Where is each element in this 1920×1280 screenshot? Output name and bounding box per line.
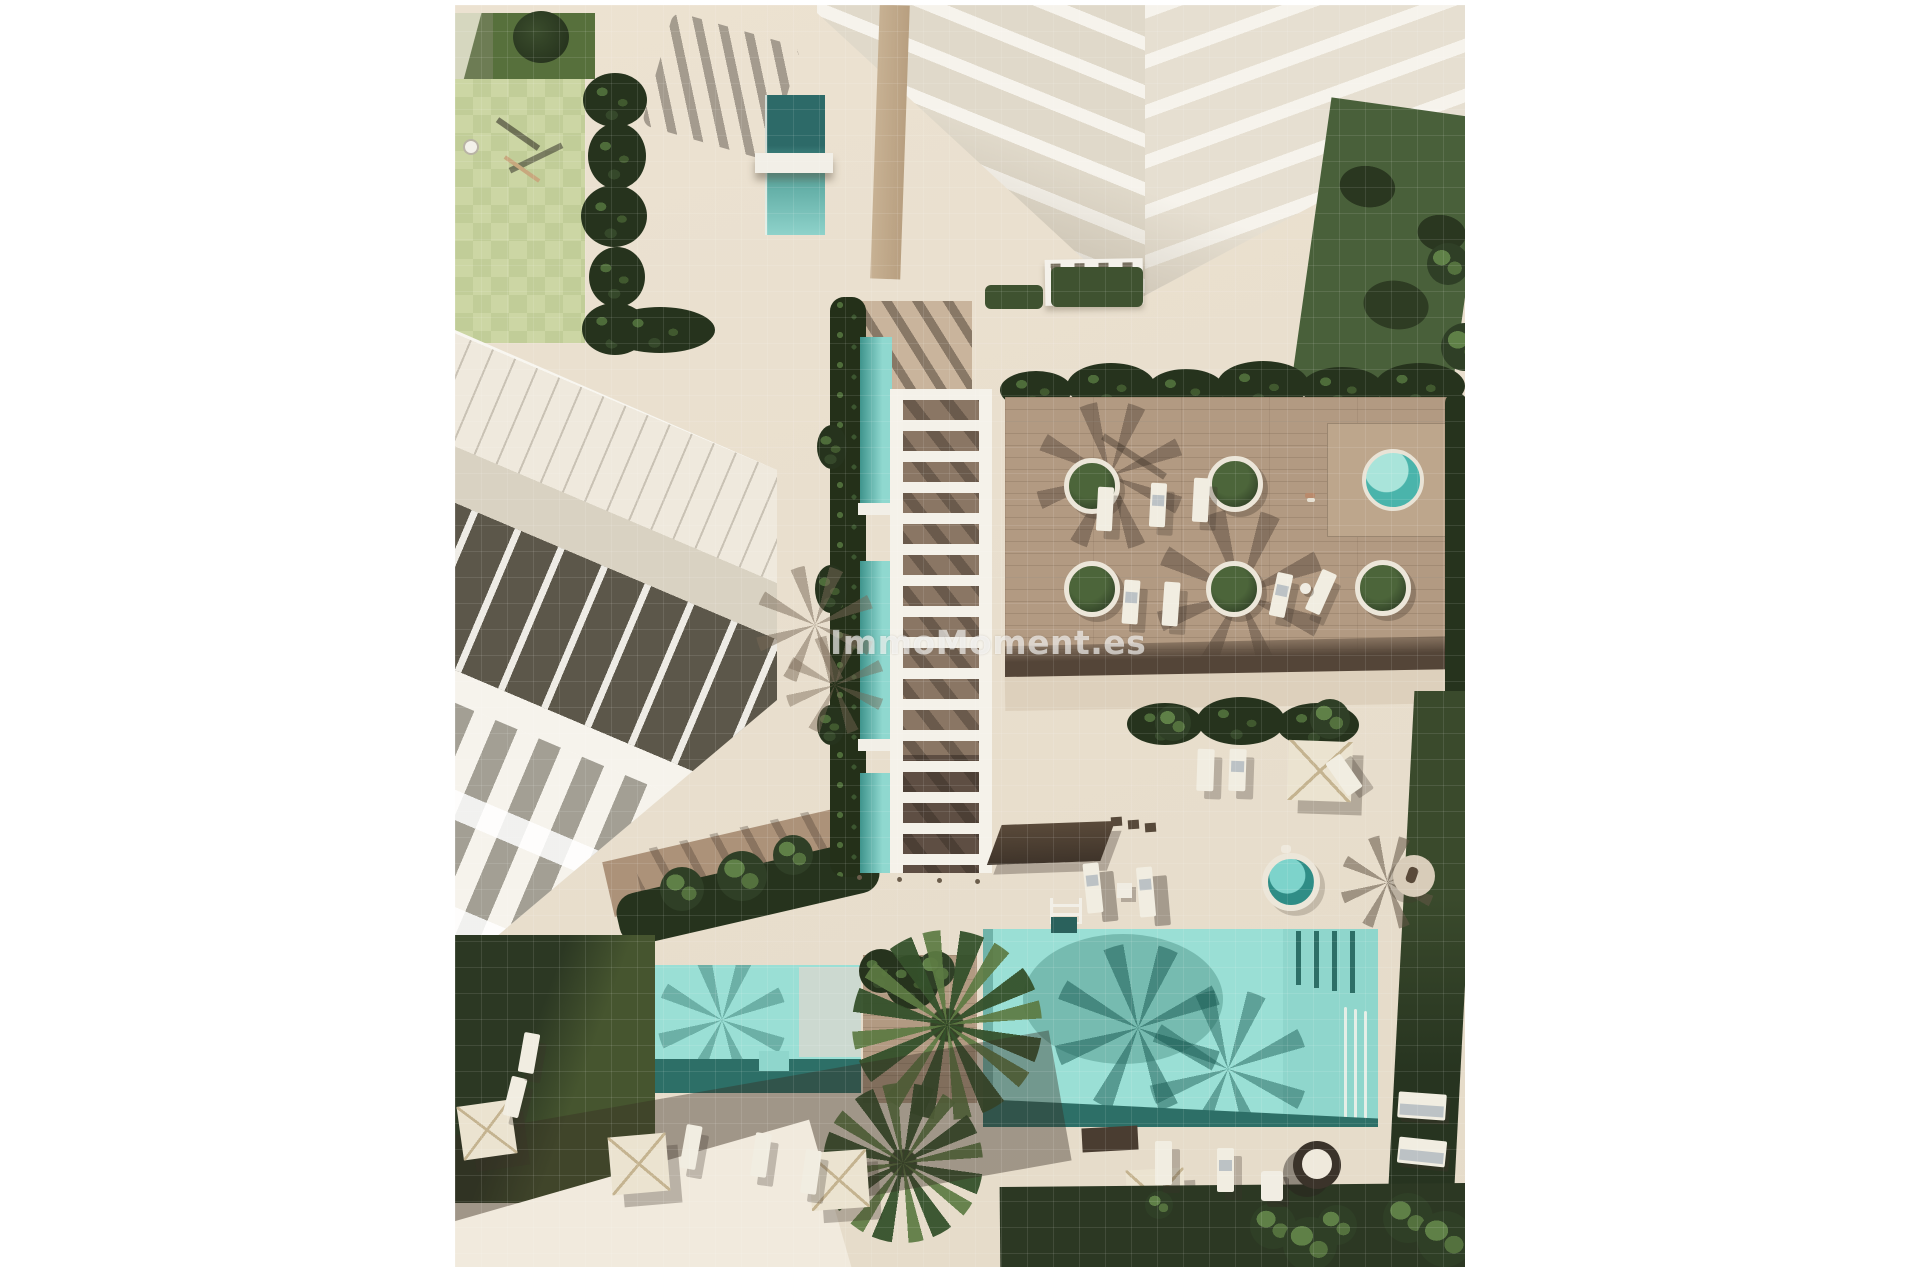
spa-step [1281,845,1291,853]
channel-divider [858,503,894,515]
pool-steps [1364,1011,1367,1127]
sun-lounger [1217,1148,1234,1192]
trunk-reflection [1350,931,1355,993]
hedge-strip [1445,393,1465,705]
path-dot [975,879,980,884]
sun-lounger [1397,1091,1447,1120]
sun-lounger [1082,862,1103,913]
watermark: ImmoMoment.es [830,623,1146,662]
sun-lounger [1121,579,1140,624]
trunk-reflection [1314,931,1319,988]
hedge [589,247,645,307]
aerial-render-image: ImmoMoment.es [455,5,1465,1267]
hedge [1197,697,1285,745]
trunk-reflection [1296,931,1301,985]
plants [1145,1191,1173,1219]
channel-divider [858,739,894,751]
pool-reflection [799,967,861,1057]
round-planter [1206,561,1262,617]
hedge [588,123,646,189]
palm-plant [1427,243,1465,285]
parasol [608,1133,671,1196]
papasan-cushion [1302,1149,1332,1179]
hedge [605,307,715,353]
sun-lounger [1196,749,1214,792]
stepping-mats [1145,823,1157,833]
hedge [817,425,847,469]
pool-bridge [755,153,833,173]
sun-lounger [1096,487,1114,532]
hedge-plant [717,851,767,901]
sun-lounger [1161,581,1180,626]
pool-steps [1354,1009,1357,1123]
sun-lounger [1136,866,1156,917]
grass-patch [985,285,1043,309]
deck-spa-pool [1362,449,1424,511]
pool-step-notch [759,1051,789,1071]
side-table [1117,883,1132,898]
pool-ladder-entry [1051,917,1077,933]
deck-mat [1081,1126,1138,1153]
person [1307,498,1315,502]
pool-steps [1344,1007,1347,1119]
sun-lounger [1397,1137,1447,1168]
sun-lounger [1192,478,1210,523]
sun-lounger [1149,483,1167,528]
shade-awning [987,821,1115,865]
path-dot [857,875,862,880]
trunk-reflection [1332,931,1337,991]
round-planter [1064,561,1120,617]
hedge-plant [773,835,813,875]
deck-chair [1261,1171,1283,1201]
plants [1317,1205,1357,1245]
playground [455,79,585,343]
path-dot [897,877,902,882]
sun-lounger [1155,1141,1172,1185]
stepping-mats [1128,820,1140,830]
water-channel [860,337,892,505]
tree-canopy [513,11,569,63]
path-dot [937,878,942,883]
sun-lounger [1228,749,1246,792]
grass-patch [1051,267,1143,307]
hedge [581,185,647,247]
round-planter [1207,456,1263,512]
play-structure [465,141,477,153]
round-spa-pool [1262,853,1320,911]
render-page: ImmoMoment.es [0,0,1920,1280]
round-planter [1355,560,1411,616]
water-channel [860,773,892,873]
lawn-wedge [1388,691,1465,1203]
hedge-plant [1310,699,1350,739]
garden-kiosk [455,13,495,85]
plants [1417,1211,1465,1267]
side-table [1300,583,1311,594]
hedge [583,73,647,127]
hedge-plant [1155,705,1191,741]
hedge-plant [660,867,704,911]
